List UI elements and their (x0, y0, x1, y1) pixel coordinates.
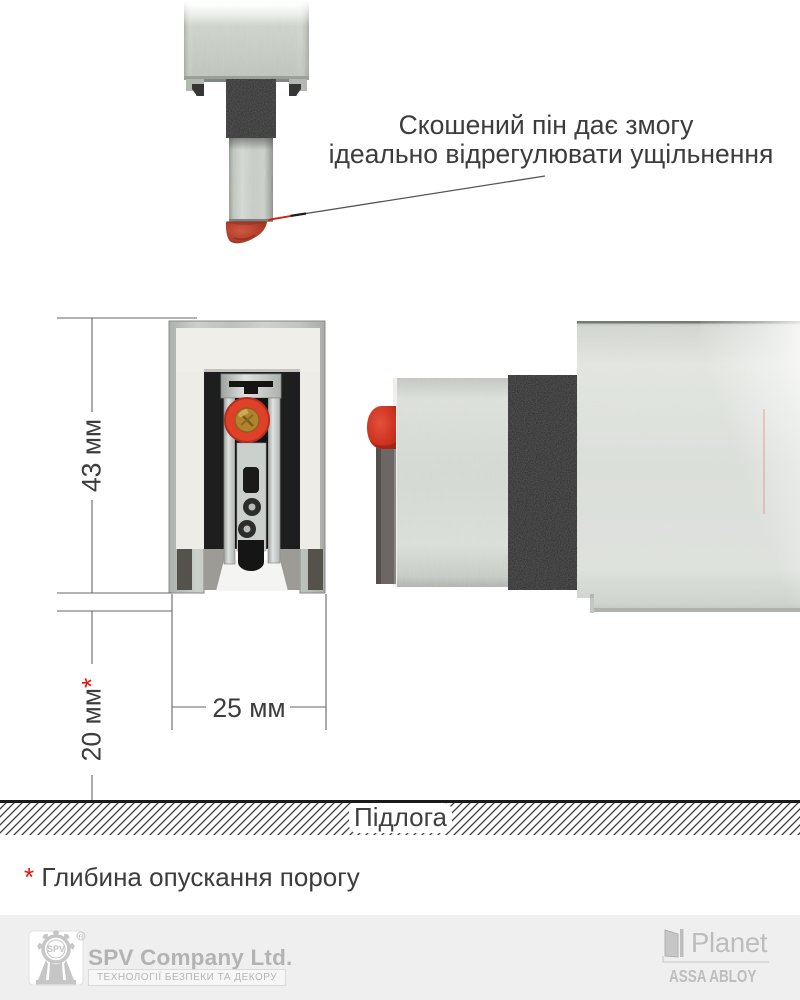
svg-text:ASSA ABLOY: ASSA ABLOY (669, 967, 757, 986)
svg-text:R: R (79, 934, 84, 941)
svg-text:Planet: Planet (691, 927, 768, 958)
svg-text:SPV: SPV (47, 944, 65, 954)
